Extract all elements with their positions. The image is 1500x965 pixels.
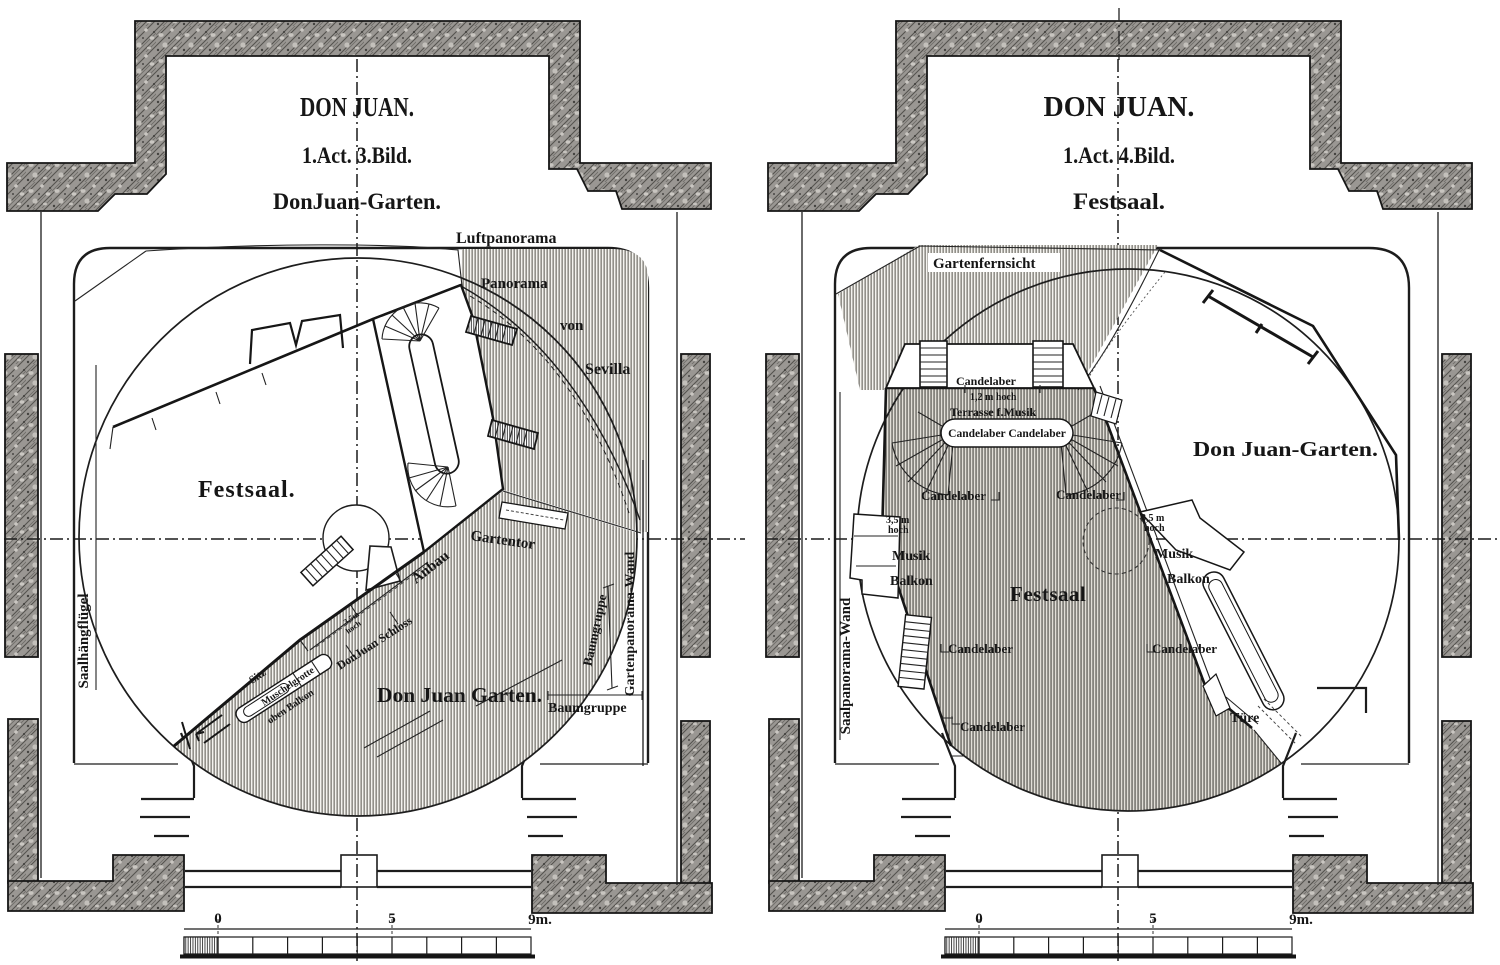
- svg-text:Panorama: Panorama: [481, 276, 548, 292]
- svg-text:hoch: hoch: [1144, 523, 1165, 534]
- svg-text:Gartenpanorama-Wand: Gartenpanorama-Wand: [623, 551, 638, 696]
- svg-text:1.Act. 3.Bild.: 1.Act. 3.Bild.: [302, 143, 412, 168]
- svg-text:Don Juan-Garten.: Don Juan-Garten.: [1193, 437, 1378, 461]
- svg-text:1.Act. 4.Bild.: 1.Act. 4.Bild.: [1063, 143, 1175, 168]
- svg-text:DON JUAN.: DON JUAN.: [300, 92, 414, 122]
- svg-text:Candelaber: Candelaber: [960, 719, 1025, 734]
- svg-text:Sevilla: Sevilla: [585, 361, 630, 378]
- svg-text:Musik: Musik: [892, 549, 930, 564]
- svg-text:Saalpanorama-Wand: Saalpanorama-Wand: [838, 597, 854, 734]
- svg-text:Candelaber Candelaber: Candelaber Candelaber: [948, 428, 1066, 440]
- svg-text:Festsaal: Festsaal: [1010, 582, 1086, 606]
- svg-text:Balkon: Balkon: [890, 574, 933, 589]
- svg-text:Candelaber: Candelaber: [948, 641, 1013, 656]
- svg-text:Saalhängflügel: Saalhängflügel: [76, 593, 92, 688]
- svg-text:Gartenfernsicht: Gartenfernsicht: [933, 256, 1035, 272]
- svg-text:Candelaber: Candelaber: [956, 374, 1017, 388]
- svg-text:Musik: Musik: [1155, 547, 1193, 562]
- svg-text:von: von: [560, 318, 584, 334]
- svg-text:Türe: Türe: [1230, 711, 1259, 726]
- svg-text:Luftpanorama: Luftpanorama: [456, 230, 556, 247]
- svg-text:Don Juan Garten.: Don Juan Garten.: [377, 683, 542, 707]
- svg-text:Balkon: Balkon: [1167, 572, 1210, 587]
- svg-text:Baumgruppe: Baumgruppe: [548, 701, 627, 716]
- svg-text:Festsaal.: Festsaal.: [198, 477, 296, 503]
- svg-text:Terrasse f.Musik: Terrasse f.Musik: [950, 405, 1037, 419]
- svg-text:DonJuan-Garten.: DonJuan-Garten.: [273, 189, 441, 214]
- svg-text:1,2 m hoch: 1,2 m hoch: [970, 392, 1017, 403]
- svg-text:Candelaber: Candelaber: [1056, 487, 1121, 502]
- svg-text:Festsaal.: Festsaal.: [1073, 189, 1165, 214]
- svg-text:Candelaber: Candelaber: [921, 488, 986, 503]
- svg-text:DON JUAN.: DON JUAN.: [1044, 92, 1195, 123]
- svg-text:hoch: hoch: [888, 525, 909, 536]
- svg-text:Candelaber: Candelaber: [1152, 641, 1217, 656]
